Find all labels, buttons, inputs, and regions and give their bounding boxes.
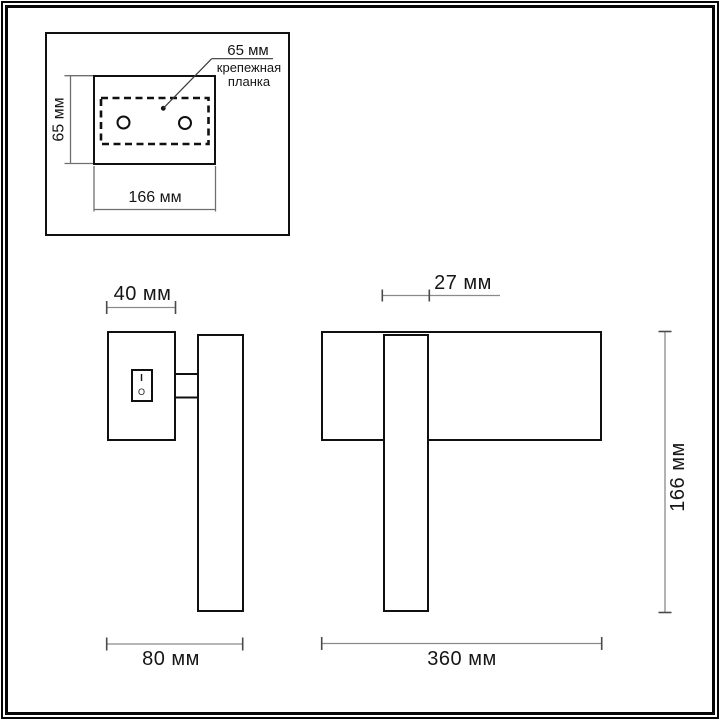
power-switch: I O bbox=[131, 369, 153, 402]
depth-dimension-label: 80 мм bbox=[131, 649, 211, 669]
backplate-outline bbox=[93, 75, 216, 165]
callout-part-name-line2: планка bbox=[228, 74, 270, 89]
side-view-arm bbox=[197, 334, 244, 613]
front-view-arm bbox=[383, 334, 429, 613]
total-width-dimension-label: 360 мм bbox=[412, 649, 512, 669]
front-view-bar bbox=[321, 331, 602, 441]
inset-height-dimension-label: 65 мм bbox=[51, 85, 68, 155]
switch-off-icon: O bbox=[138, 388, 145, 397]
callout-dimension-label: 65 мм bbox=[208, 43, 288, 58]
drawing-canvas: 65 мм крепежная планка 65 мм 166 мм I O … bbox=[0, 0, 720, 720]
plate-width-dimension-label: 40 мм bbox=[103, 284, 183, 304]
switch-on-icon: I bbox=[140, 374, 143, 384]
height-dimension-label: 166 мм bbox=[668, 432, 688, 522]
callout-part-name: крепежная планка bbox=[203, 61, 295, 88]
arm-width-dimension-label: 27 мм bbox=[423, 273, 503, 293]
inset-width-dimension-label: 166 мм bbox=[115, 190, 195, 206]
